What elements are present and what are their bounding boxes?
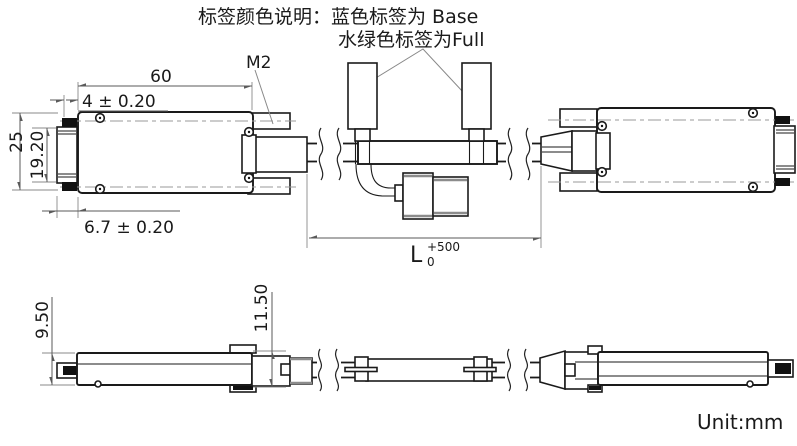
annotation-leader-line xyxy=(366,49,477,107)
label-color-annotation: 标签颜色说明：蓝色标签为 Base 水绿色标签为Full xyxy=(198,6,485,109)
break-mark xyxy=(525,349,528,391)
dsub-connector xyxy=(57,127,77,183)
junction-sleeve xyxy=(358,141,497,164)
module-body xyxy=(78,112,253,193)
module-body-side xyxy=(77,353,252,385)
cable-boot xyxy=(541,131,572,171)
module-body-side xyxy=(598,352,768,385)
latch-notch xyxy=(565,364,575,376)
module-body xyxy=(597,108,775,192)
dim-60: 60 xyxy=(150,67,172,87)
internal-connector xyxy=(596,133,610,169)
cable-top-view xyxy=(307,128,541,180)
tag-body xyxy=(462,63,491,129)
internal-connector xyxy=(242,135,256,173)
plug-housing xyxy=(572,131,597,171)
boot-clip xyxy=(230,345,256,353)
cable-boot xyxy=(255,137,307,172)
break-mark xyxy=(336,349,339,391)
annotation-line-2: 水绿色标签为Full xyxy=(338,29,485,51)
break-mark xyxy=(508,349,511,391)
dim-25: 25 xyxy=(7,131,27,153)
break-mark xyxy=(319,128,322,180)
left-module-top-view xyxy=(57,112,307,194)
tag-body xyxy=(348,63,377,129)
break-mark xyxy=(508,128,511,180)
dim-9-50: 9.50 xyxy=(33,301,53,339)
drawing-canvas: 标签颜色说明：蓝色标签为 Base 水绿色标签为Full xyxy=(0,0,797,446)
annotation-line-1: 标签颜色说明：蓝色标签为 Base xyxy=(198,6,478,28)
technical-drawing-page: 标签颜色说明：蓝色标签为 Base 水绿色标签为Full xyxy=(0,0,797,446)
screw-boss xyxy=(747,381,753,387)
right-module-top-view xyxy=(541,108,795,192)
break-mark xyxy=(526,128,529,180)
cable-side-view xyxy=(312,349,540,391)
break-mark xyxy=(319,349,322,391)
boot-side xyxy=(540,351,565,389)
dim-L-upper-tol: +500 xyxy=(427,240,460,254)
dim-L-lower-tol: 0 xyxy=(427,255,435,269)
connector-overmold xyxy=(403,173,433,219)
jack-screw xyxy=(775,116,790,124)
tag-neck xyxy=(469,129,484,141)
boot-side xyxy=(290,358,312,384)
branch-cable xyxy=(356,164,395,196)
dim-L-base: L xyxy=(410,243,423,268)
right-module-side-view xyxy=(540,346,793,392)
tag-neck xyxy=(355,129,370,141)
dim-6-7: 6.7 ± 0.20 xyxy=(84,218,174,238)
cable-ferrule xyxy=(395,185,403,201)
jack-screw xyxy=(775,178,790,186)
jack-screw xyxy=(62,118,77,127)
jack-screw xyxy=(62,182,77,191)
mounting-tab xyxy=(560,109,597,127)
branch-connector xyxy=(356,164,468,219)
break-mark xyxy=(337,128,340,180)
dim-11-50: 11.50 xyxy=(252,284,272,333)
mounting-tab xyxy=(248,178,290,194)
left-module-side-view xyxy=(57,345,312,392)
screw-boss xyxy=(95,381,101,387)
side-view xyxy=(57,345,793,392)
connector-shield xyxy=(433,177,468,216)
unit-note: Unit:mm xyxy=(697,410,783,434)
branch-cable xyxy=(371,164,395,188)
dim-4: 4 ± 0.20 xyxy=(82,92,156,112)
dim-19-20: 19.20 xyxy=(28,131,48,180)
dim-m2: M2 xyxy=(246,53,271,73)
